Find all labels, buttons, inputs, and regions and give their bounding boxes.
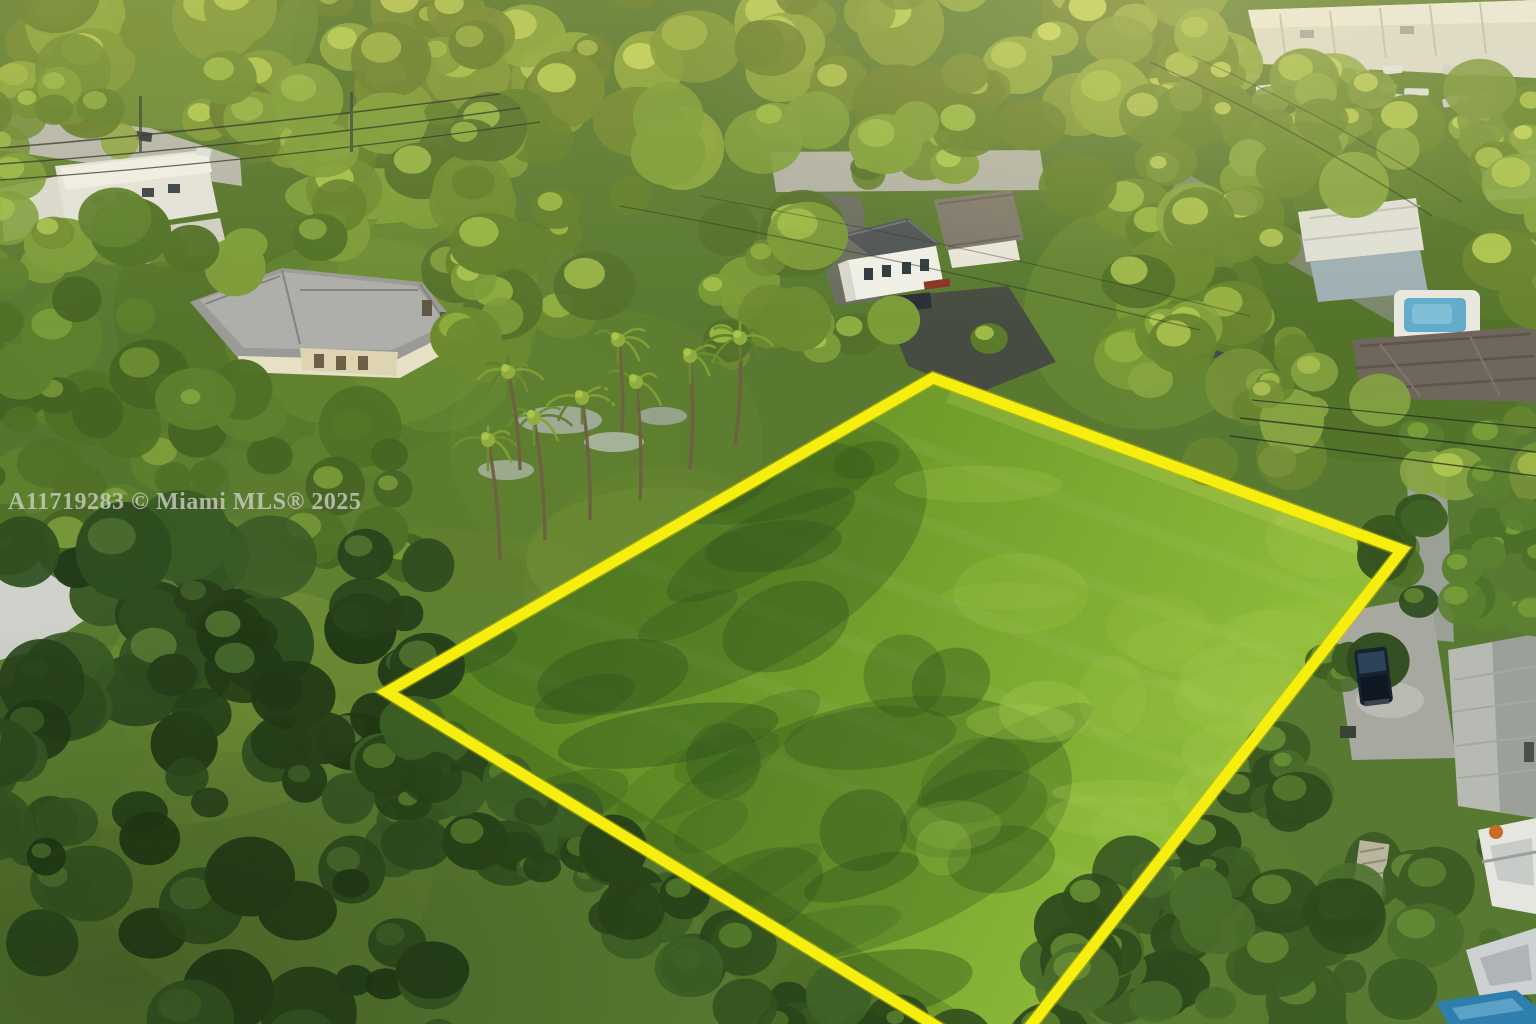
trash-bin — [1340, 726, 1356, 738]
aerial-photo — [0, 0, 1536, 1024]
pickup-truck — [1354, 646, 1394, 707]
aerial-photo-stage: A11719283 © Miami MLS® 2025 — [0, 0, 1536, 1024]
orange-buoy — [1489, 825, 1503, 839]
